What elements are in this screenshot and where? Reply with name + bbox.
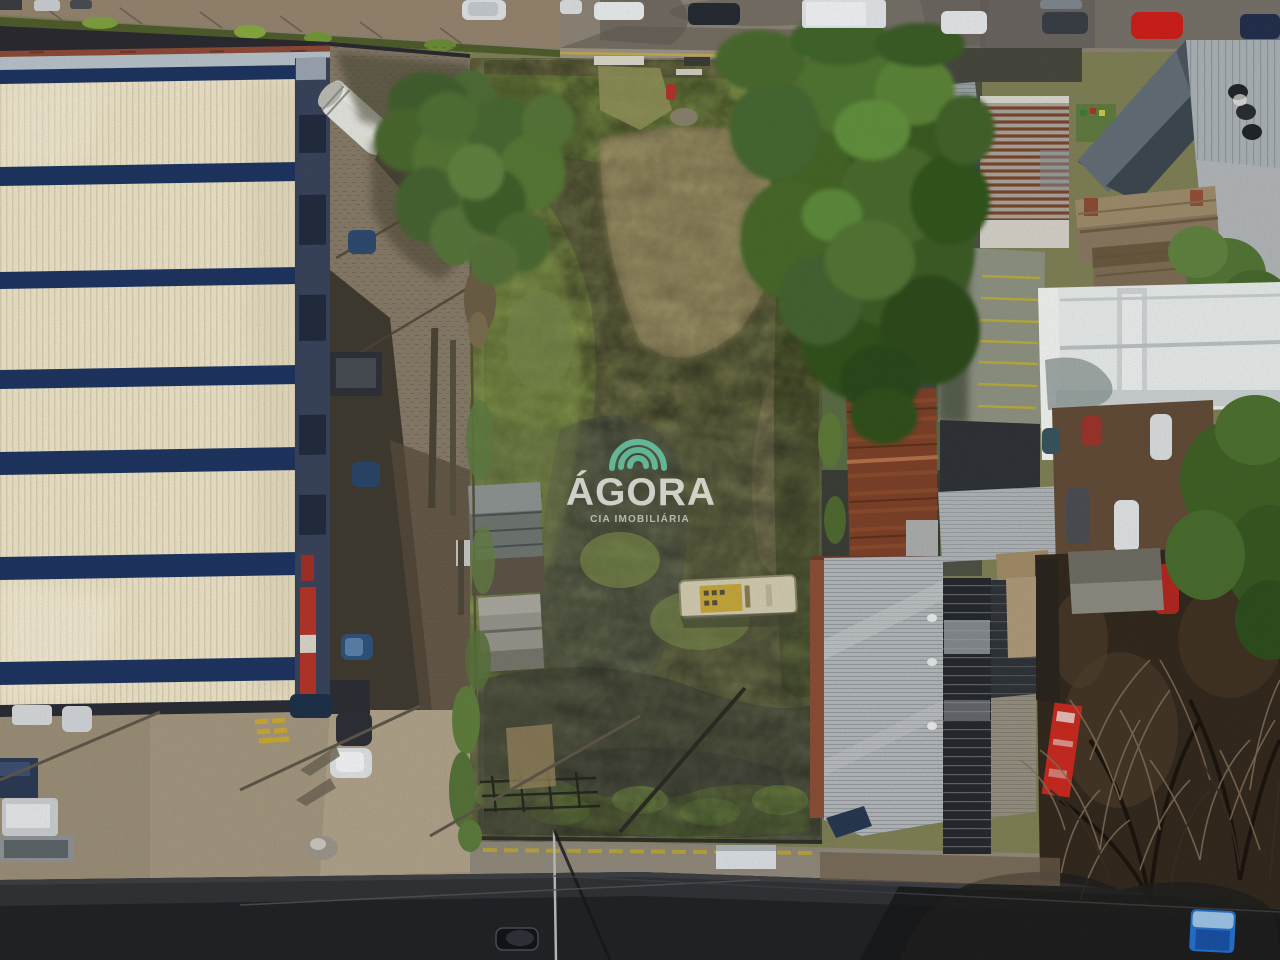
svg-text:CIA IMOBILIÁRIA: CIA IMOBILIÁRIA: [590, 512, 690, 525]
svg-text:ÁGORA: ÁGORA: [566, 470, 716, 514]
